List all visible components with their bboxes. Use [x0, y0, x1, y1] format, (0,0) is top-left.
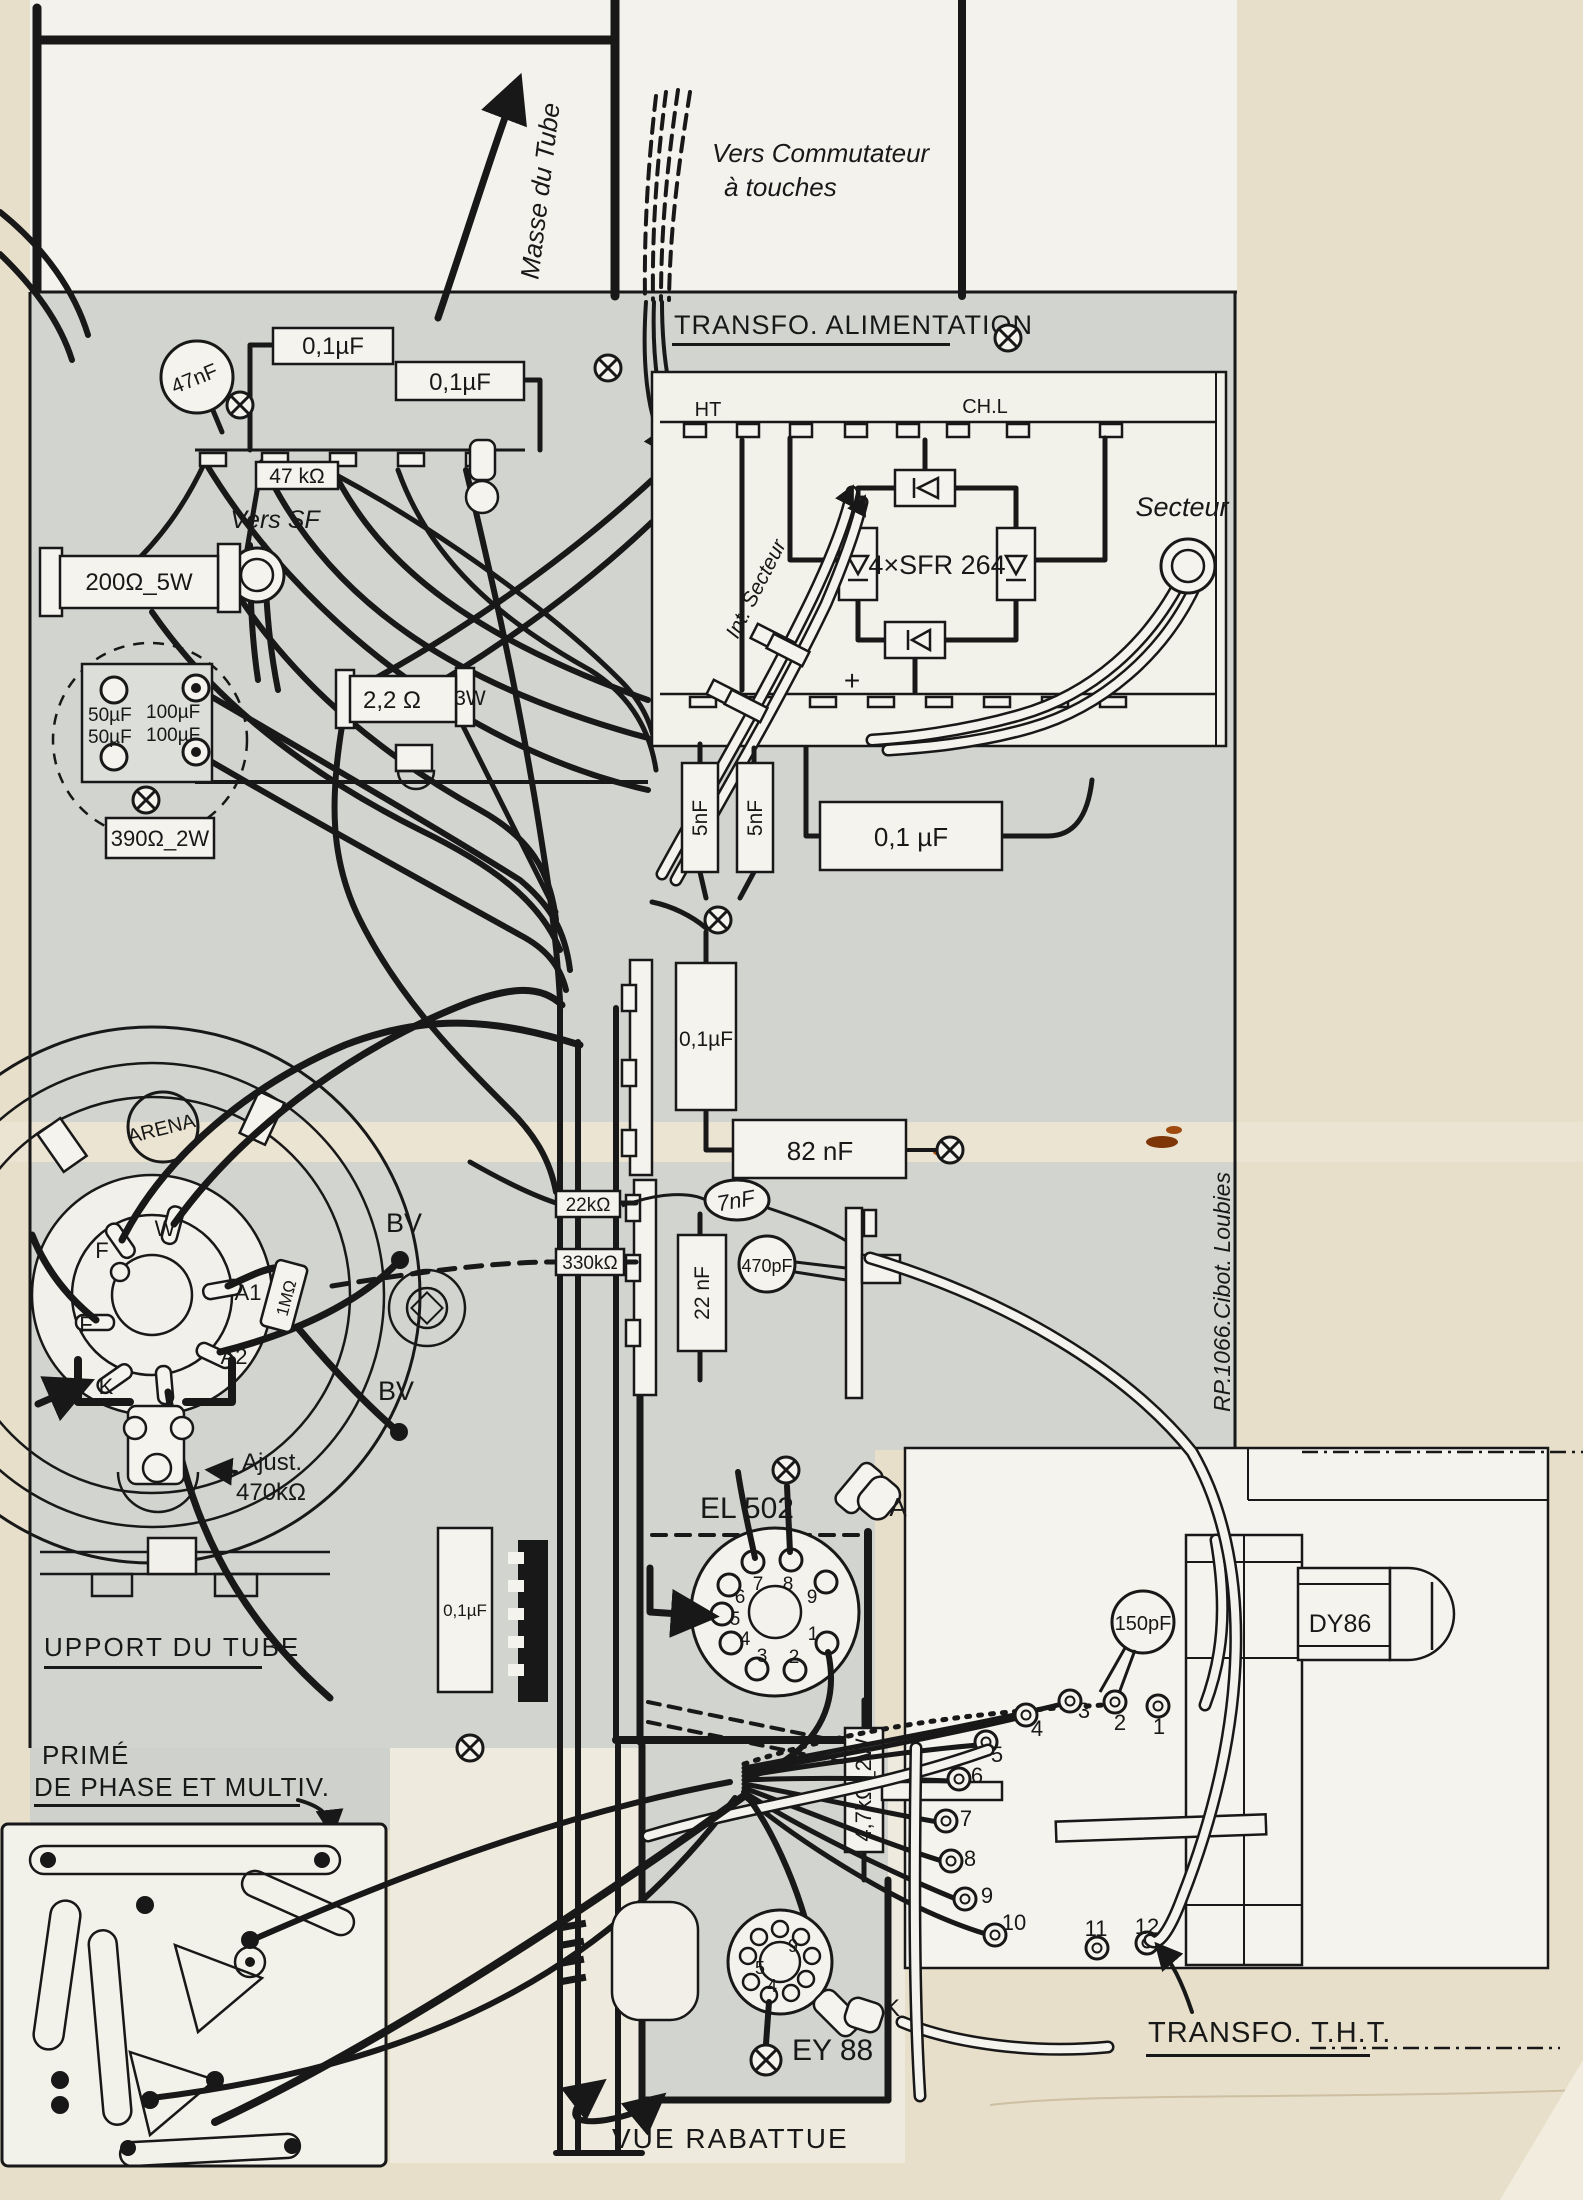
cap-100b: 100µF [146, 725, 200, 746]
bv1-label: BV [386, 1208, 422, 1238]
res-47k-value: 47 kΩ [269, 465, 324, 488]
svg-text:8: 8 [783, 1574, 794, 1595]
ht-terminal-label: HT [695, 399, 722, 421]
svg-text:9: 9 [981, 1883, 993, 1908]
transfo-alimentation-title: TRANSFO. ALIMENTATION [674, 310, 1033, 340]
cap-5nf-2-value: 5nF [744, 800, 767, 836]
cap-01a-value: 0,1µF [302, 333, 364, 360]
ey88-pin9: 9 [788, 1936, 798, 1956]
res-22-watt: 3W [454, 687, 486, 710]
svg-text:3: 3 [1078, 1698, 1090, 1723]
cap-50b: 50µF [88, 727, 132, 748]
dy86-label: DY86 [1309, 1610, 1372, 1638]
res-330k-value: 330kΩ [562, 1253, 617, 1274]
terminal-strip-a [622, 960, 652, 1175]
svg-text:4: 4 [740, 1629, 751, 1650]
svg-text:1: 1 [808, 1624, 819, 1645]
cap-5nf-1-value: 5nF [689, 800, 712, 836]
pin-f2-label: F [79, 1312, 92, 1337]
schematic-canvas: Masse du Tube Vers Commutateur à touches… [0, 0, 1583, 2200]
res-200-value: 200Ω_5W [85, 569, 193, 596]
svg-text:9: 9 [807, 1587, 818, 1608]
vers-commutateur-line1: Vers Commutateur [712, 138, 931, 168]
svg-text:8: 8 [964, 1846, 976, 1871]
cap-470pf-value: 470pF [741, 1256, 792, 1276]
plus-terminal-label: + [844, 665, 860, 696]
cap-100a: 100µF [146, 702, 200, 723]
dy86-tube: DY86 [1298, 1568, 1454, 1660]
svg-text:6: 6 [971, 1763, 983, 1788]
cap-22nf-value: 22 nF [691, 1266, 714, 1320]
bridge-type-label: 4×SFR 264 [868, 550, 1005, 580]
vue-rabattue-label: VUE RABATTUE [612, 2123, 849, 2154]
cap-01low-value: 0,1µF [443, 1601, 487, 1620]
transfo-tht-title: TRANSFO. T.H.T. [1148, 2017, 1391, 2049]
cap-150pf-value: 150pF [1115, 1613, 1172, 1635]
pin-f1-label: F [95, 1238, 108, 1263]
bv2-label: BV [378, 1376, 414, 1406]
svg-text:10: 10 [1002, 1910, 1026, 1935]
svg-text:7: 7 [960, 1806, 972, 1831]
svg-text:1: 1 [1153, 1714, 1165, 1739]
ajust-label-1: Ajust. [242, 1449, 302, 1476]
cap-50a: 50µF [88, 705, 132, 726]
ajust-label-2: 470kΩ [236, 1479, 306, 1506]
pcb-label-1: PRIMÉ [42, 1740, 129, 1770]
ey88-pin5: 5 [755, 1958, 765, 1978]
svg-text:2: 2 [1114, 1710, 1126, 1735]
svg-text:3: 3 [757, 1646, 768, 1667]
svg-text:4: 4 [1031, 1716, 1043, 1741]
ey88-pin4: 4 [767, 1976, 777, 1996]
anode-a-label: A [889, 1492, 907, 1522]
res-22k-value: 22kΩ [566, 1195, 611, 1216]
pcb-label-2: DE PHASE ET MULTIV. [34, 1772, 330, 1802]
artwork-credit: RP.1066.Cibot. Loubies [1209, 1172, 1235, 1412]
svg-text:2: 2 [789, 1647, 800, 1668]
svg-text:7: 7 [753, 1574, 764, 1595]
secteur-label: Secteur [1135, 492, 1229, 522]
cap-01v-value: 0,1µF [679, 1028, 733, 1051]
res-200ohm: 200Ω_5W [40, 544, 240, 616]
pin-k-label: K [99, 1374, 114, 1399]
cap-01b-value: 0,1µF [429, 369, 491, 396]
svg-text:5: 5 [730, 1609, 741, 1630]
chl-terminal-label: CH.L [962, 396, 1008, 418]
vers-commutateur-line2: à touches [724, 172, 837, 202]
res-22-value: 2,2 Ω [363, 687, 421, 714]
scanned-schematic-page: Masse du Tube Vers Commutateur à touches… [0, 0, 1583, 2200]
pin-w-label: W [155, 1216, 176, 1241]
res-390-value: 390Ω_2W [111, 826, 210, 851]
vers-sf-label: Vers SF [230, 506, 321, 534]
cap-01big-value: 0,1 µF [874, 822, 948, 852]
svg-text:6: 6 [735, 1587, 746, 1608]
pin-a1-label: A1 [235, 1280, 262, 1305]
ey88-label: EY 88 [792, 2034, 873, 2067]
cap-82nf-value: 82 nF [787, 1136, 854, 1166]
support-du-tube-label: UPPORT DU TUBE [44, 1632, 300, 1662]
svg-text:11: 11 [1085, 1916, 1108, 1941]
